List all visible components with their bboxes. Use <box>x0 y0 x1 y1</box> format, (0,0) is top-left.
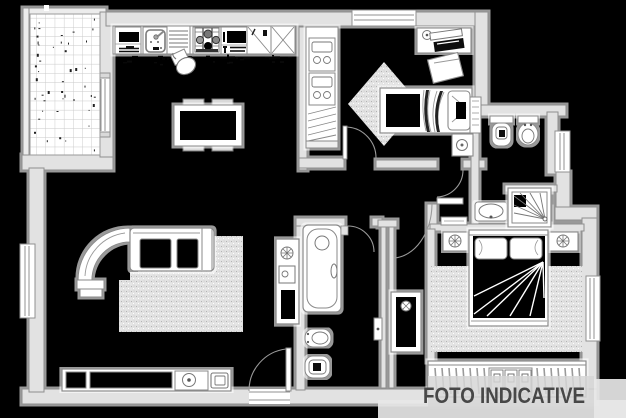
svg-text:FOTO INDICATIVE: FOTO INDICATIVE <box>423 383 585 408</box>
